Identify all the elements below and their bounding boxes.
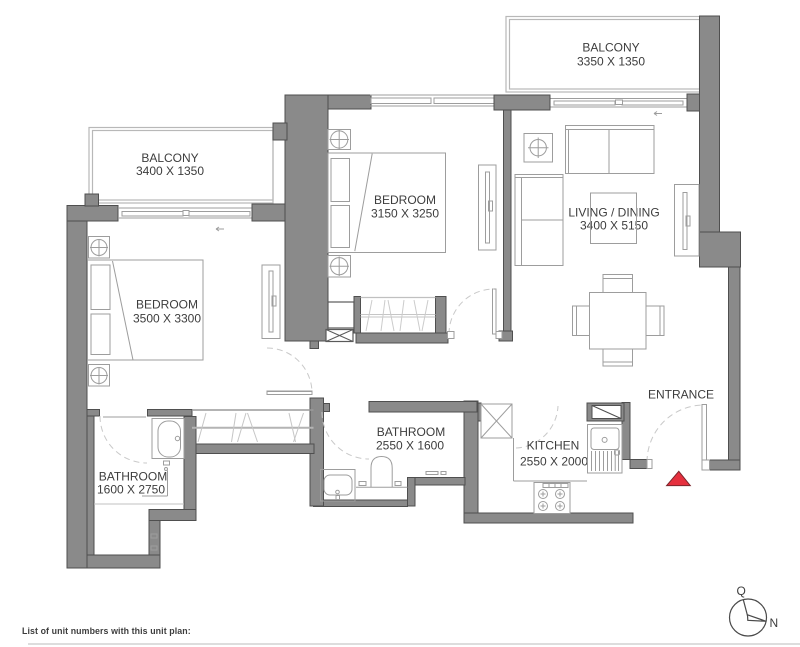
svg-text:2550 X 1600: 2550 X 1600 [376, 438, 444, 452]
svg-text:3400 X 1350: 3400 X 1350 [136, 164, 204, 178]
svg-text:2550 X 2000: 2550 X 2000 [520, 454, 588, 468]
svg-text:3350 X 1350: 3350 X 1350 [577, 54, 645, 68]
svg-text:ENTRANCE: ENTRANCE [648, 387, 714, 401]
svg-text:LIVING / DINING: LIVING / DINING [568, 205, 659, 219]
svg-text:BATHROOM: BATHROOM [99, 469, 167, 483]
svg-text:3150 X 3250: 3150 X 3250 [371, 206, 439, 220]
svg-text:N: N [770, 616, 779, 630]
svg-text:List of unit numbers with this: List of unit numbers with this unit plan… [22, 626, 191, 636]
svg-text:KITCHEN: KITCHEN [527, 438, 580, 452]
svg-text:BEDROOM: BEDROOM [136, 297, 198, 311]
svg-text:BATHROOM: BATHROOM [377, 425, 445, 439]
svg-text:Q: Q [737, 584, 746, 598]
svg-text:BALCONY: BALCONY [582, 40, 639, 54]
svg-text:BALCONY: BALCONY [141, 151, 198, 165]
svg-text:BEDROOM: BEDROOM [374, 193, 436, 207]
svg-text:3500 X 3300: 3500 X 3300 [133, 311, 201, 325]
svg-text:1600 X 2750: 1600 X 2750 [97, 482, 165, 496]
